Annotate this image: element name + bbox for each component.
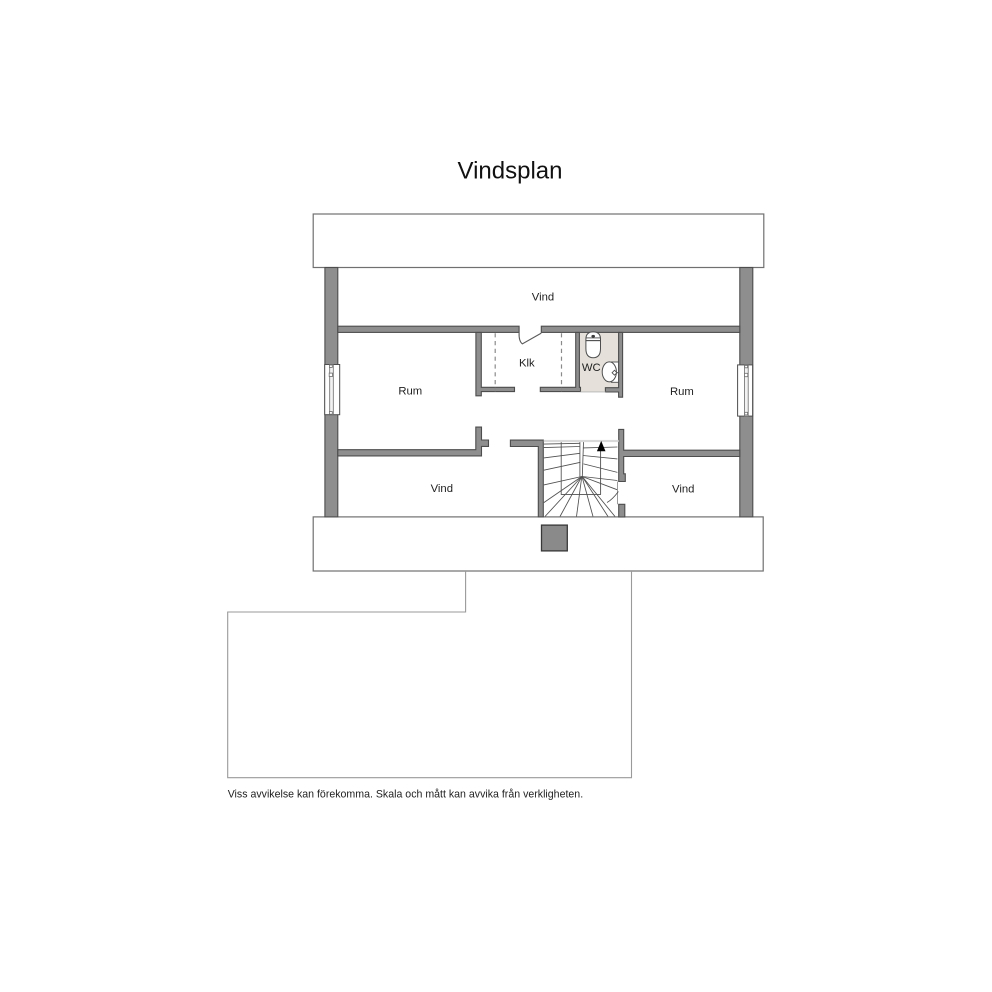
svg-text:Rum: Rum: [670, 386, 694, 398]
svg-text:Rum: Rum: [398, 385, 422, 397]
svg-text:Vind: Vind: [532, 292, 554, 304]
svg-text:Vind: Vind: [431, 483, 453, 495]
svg-text:Viss avvikelse kan förekomma.: Viss avvikelse kan förekomma. Skala och …: [228, 789, 583, 801]
svg-text:Klk: Klk: [519, 358, 535, 370]
svg-text:WC: WC: [582, 362, 601, 374]
svg-text:Vindsplan: Vindsplan: [458, 158, 563, 185]
svg-text:Vind: Vind: [672, 483, 694, 495]
